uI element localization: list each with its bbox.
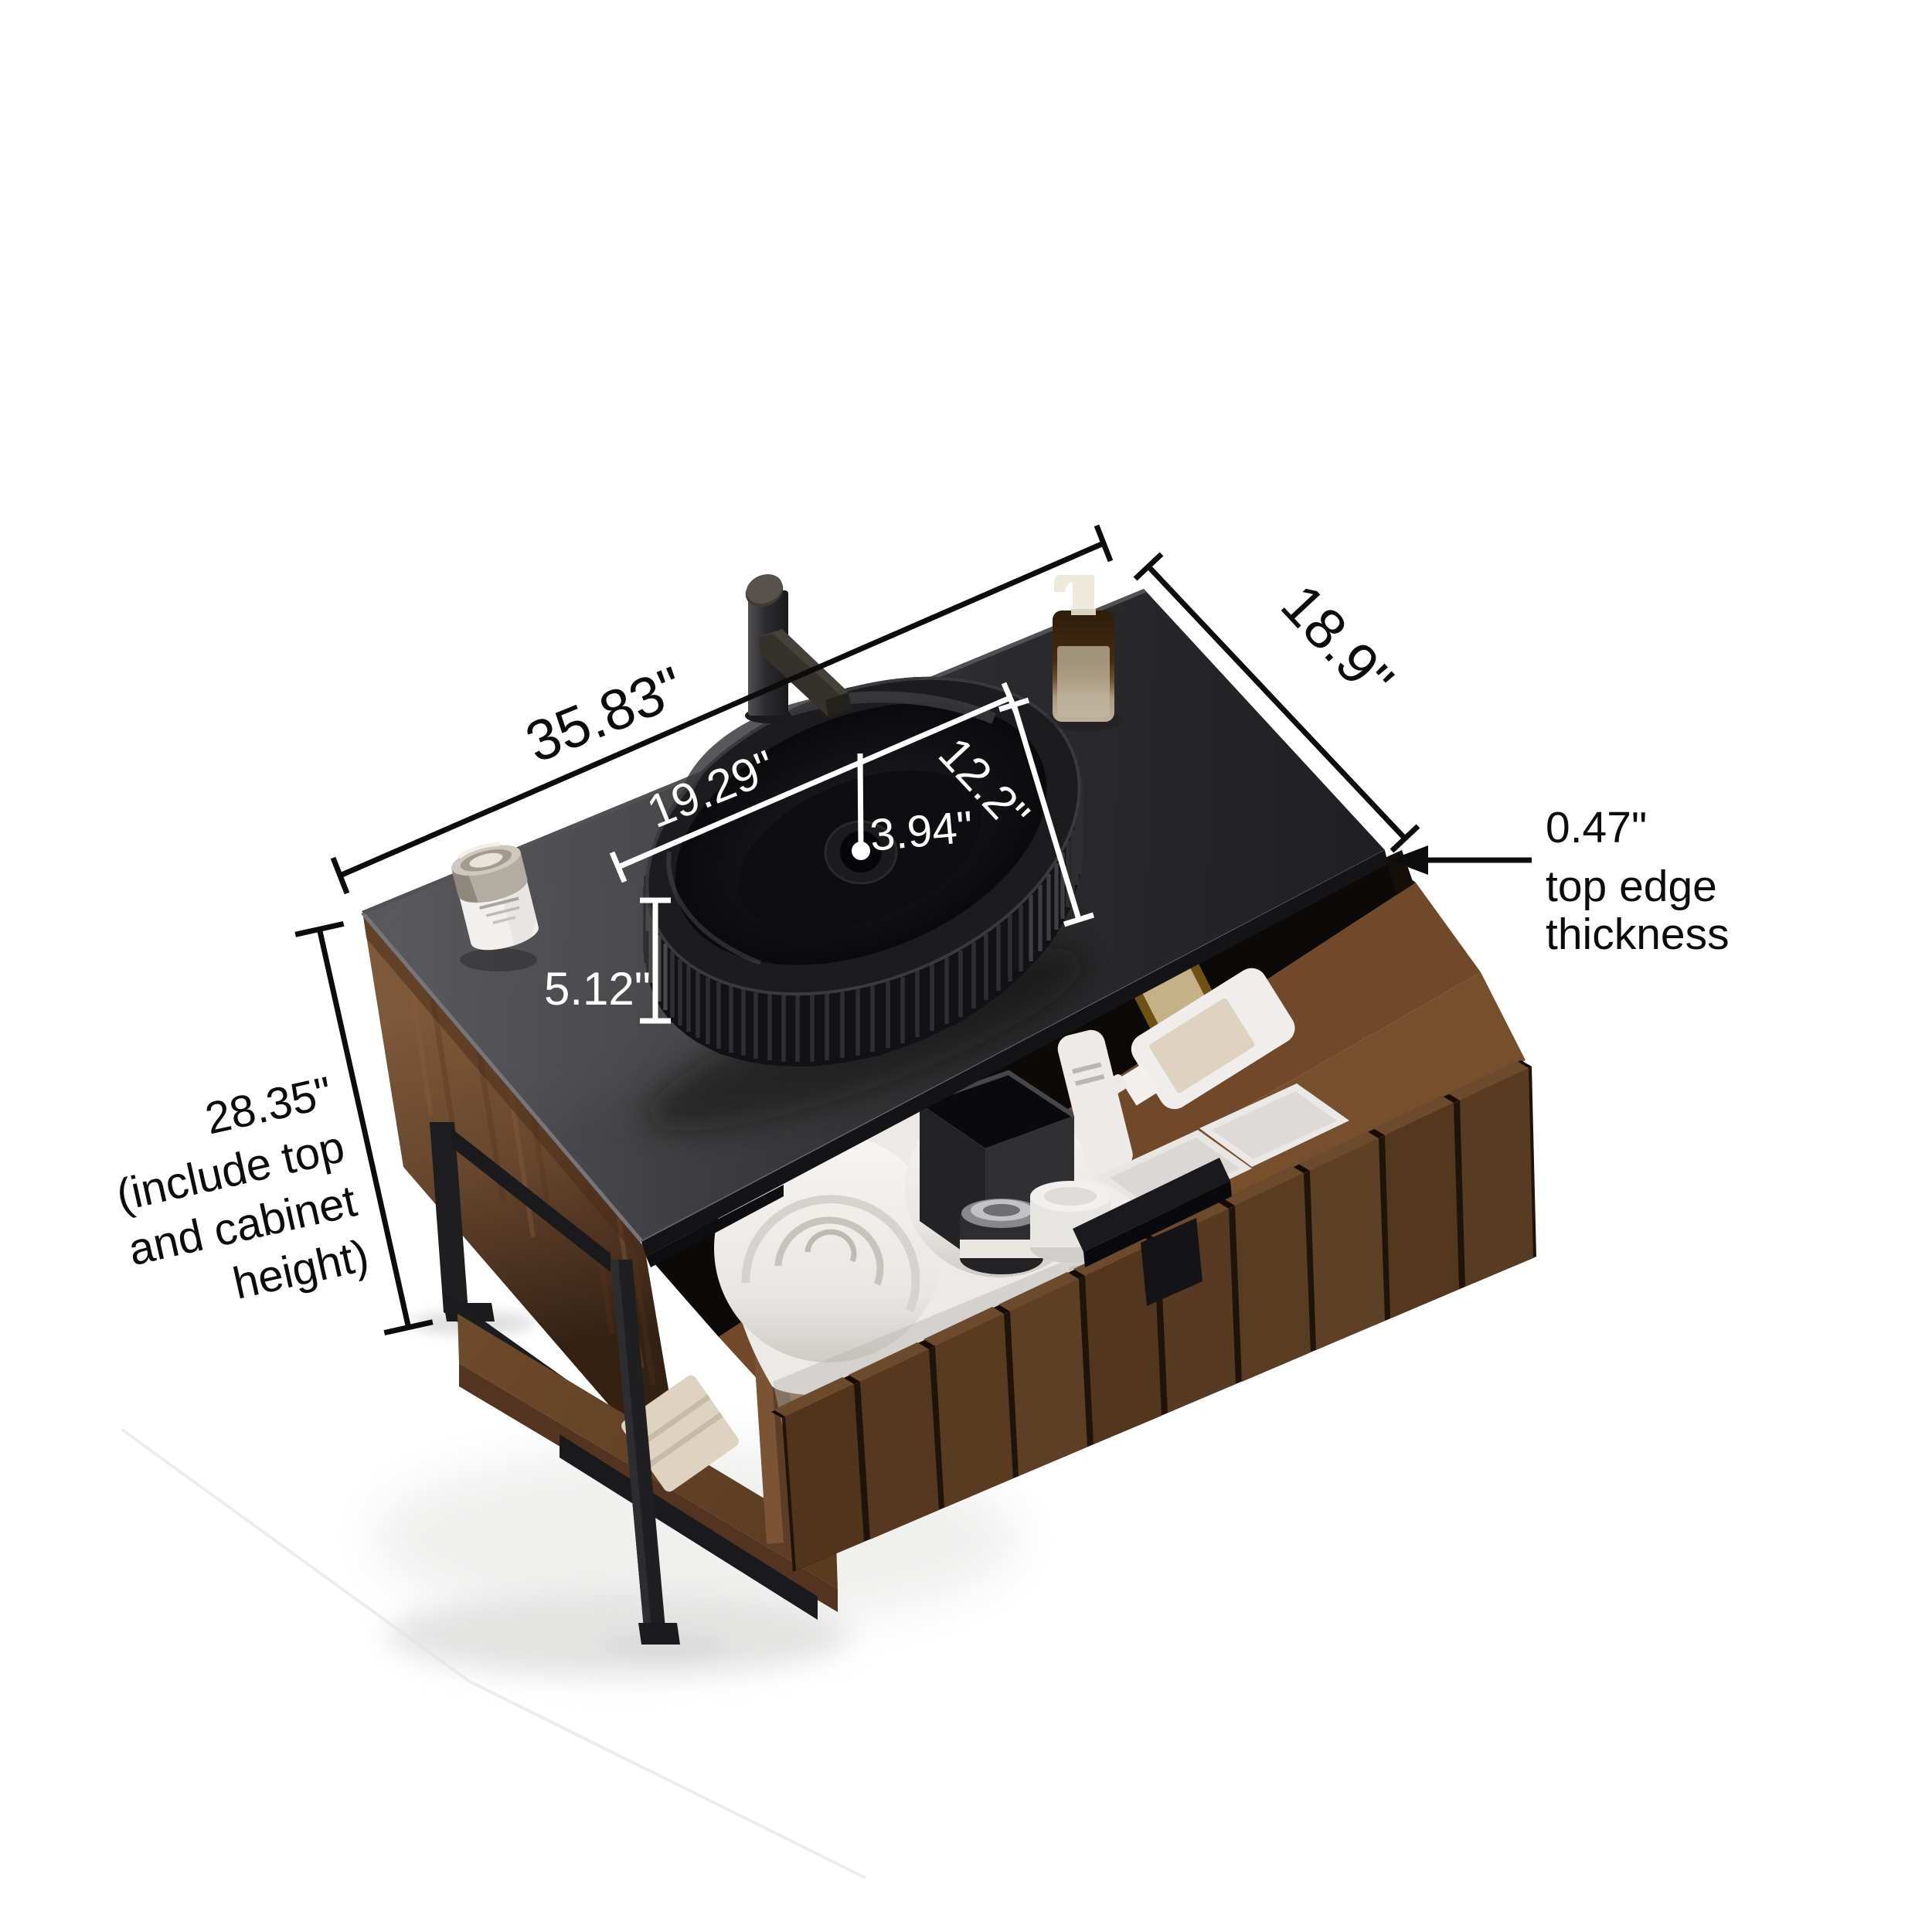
svg-text:3.94": 3.94" [868, 801, 975, 860]
svg-text:top edge: top edge [1546, 862, 1717, 911]
svg-text:5.12": 5.12" [544, 963, 651, 1015]
svg-text:0.47": 0.47" [1546, 803, 1647, 852]
svg-text:thickness: thickness [1546, 910, 1730, 959]
